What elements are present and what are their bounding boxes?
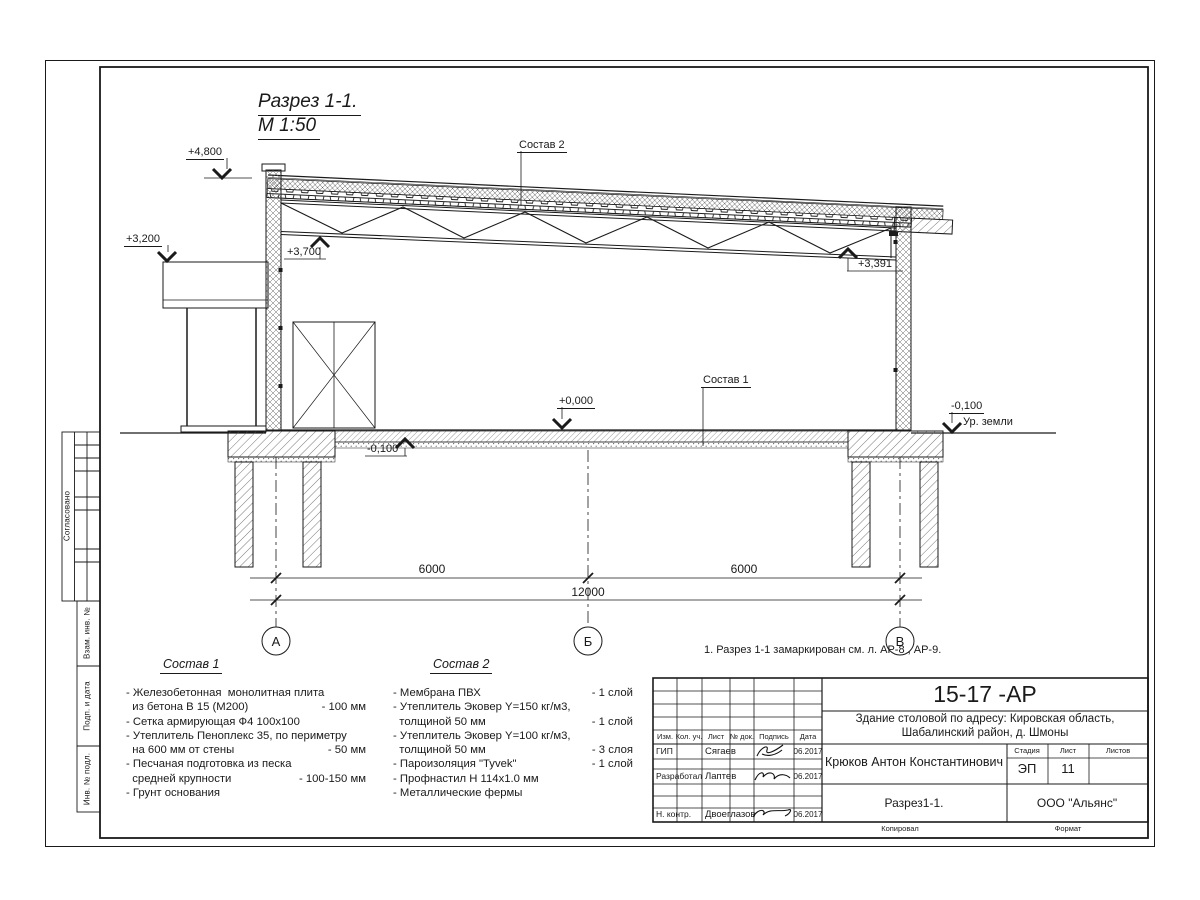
frame-label-podp-data: Подп. и дата	[84, 681, 93, 731]
sostav1-list: - Железобетонная монолитная плита из бет…	[126, 686, 366, 800]
entrance-canopy	[163, 262, 268, 432]
sostav1-callout: Состав 1	[701, 374, 751, 388]
sheet-number: 11	[1061, 762, 1075, 776]
col-header-kol: Кол. уч.	[676, 733, 703, 741]
dimension-lines	[250, 450, 922, 627]
elevation-mark-3391: +3,391	[858, 258, 892, 270]
door-leaf	[293, 322, 375, 428]
right-wall	[896, 207, 911, 430]
format-label: Формат	[1055, 825, 1082, 833]
ground-level-label: Ур. земли	[963, 416, 1013, 428]
elevation-mark-0000: +0,000	[557, 395, 595, 409]
sostav2-callout: Состав 2	[517, 139, 567, 153]
frame-label-vzam-inv: Взам. инв. №	[84, 607, 93, 659]
elevation-mark-m100-right: -0,100	[949, 400, 984, 414]
list-item: - Утеплитель Пеноплекс 35, по периметру	[126, 729, 366, 743]
doc-number: 15-17 -АР	[933, 682, 1037, 707]
elevation-mark-4800: +4,800	[186, 146, 224, 160]
signature-razrabotal	[755, 773, 790, 780]
foundation-pier	[920, 462, 938, 567]
frame-label-soglasovano: Согласовано	[64, 491, 73, 541]
foundation-pier	[852, 462, 870, 567]
list-item: толщиной 50 мм- 1 слой	[393, 715, 633, 729]
foundation-pier	[303, 462, 321, 567]
sheets-label: Листов	[1106, 747, 1130, 755]
signature-gip	[757, 745, 783, 756]
signature-nkontr	[753, 810, 791, 817]
sheet-label: Лист	[1060, 747, 1076, 755]
frame-left-column	[62, 432, 100, 812]
foundation-pier	[235, 462, 253, 567]
role-razrabotal: Разработал	[656, 772, 702, 781]
drawing-title-line1: Разрез 1-1.	[258, 92, 361, 116]
grade-beam-right	[848, 431, 943, 457]
list-item: средней крупности- 100-150 мм	[126, 772, 366, 786]
list-item: из бетона В 15 (М200)- 100 мм	[126, 700, 366, 714]
date-nkontr: 06.2017	[794, 811, 823, 820]
col-header-doc: № док.	[730, 733, 754, 741]
drawing-sheet: Разрез 1-1. М 1:50 +4,800 +3,200 +3,700 …	[0, 0, 1200, 900]
list-item: - Железобетонная монолитная плита	[126, 686, 366, 700]
name-razrabotal: Лаптев	[705, 772, 736, 782]
sostav1-heading: Состав 1	[160, 658, 222, 674]
company-name: ООО "Альянс"	[1037, 797, 1117, 810]
elevation-mark-m100-left: -0,100	[367, 443, 398, 455]
dim-12000: 12000	[571, 586, 604, 599]
sostav2-list: - Мембрана ПВХ- 1 слой - Утеплитель Эков…	[393, 686, 633, 800]
list-item: на 600 мм от стены- 50 мм	[126, 743, 366, 757]
col-header-sign: Подпись	[759, 733, 789, 741]
list-item: - Утеплитель Эковер Y=150 кг/м3,	[393, 700, 633, 714]
list-item: - Песчаная подготовка из песка	[126, 757, 366, 771]
role-nkontr: Н. контр.	[656, 810, 691, 819]
dim-6000-left: 6000	[419, 563, 446, 576]
copied-label: Копировал	[881, 825, 919, 833]
axis-bubble-a: А	[272, 635, 281, 649]
elevation-mark-3200: +3,200	[124, 233, 162, 247]
list-item: - Мембрана ПВХ- 1 слой	[393, 686, 633, 700]
list-item: - Металлические фермы	[393, 786, 633, 800]
drawing-title-scale: М 1:50	[258, 116, 320, 140]
col-header-date: Дата	[800, 733, 817, 741]
list-item: толщиной 50 мм- 3 слоя	[393, 743, 633, 757]
list-item: - Утеплитель Эковер Y=100 кг/м3,	[393, 729, 633, 743]
date-razrabotal: 06.2017	[794, 773, 823, 782]
col-header-izm: Изм.	[657, 733, 673, 741]
list-item: - Грунт основания	[126, 786, 366, 800]
date-gip: 06.2017	[794, 748, 823, 757]
role-gip: ГИП	[656, 747, 673, 756]
name-gip: Сягаев	[705, 747, 736, 757]
list-item: - Пароизоляция "Tyvek"- 1 слой	[393, 757, 633, 771]
drawing-note: 1. Разрез 1-1 замаркирован см. л. АР-8 ,…	[704, 644, 941, 656]
name-nkontr: Двоеглазов	[705, 810, 756, 820]
frame-label-inv-podl: Инв. № подл.	[84, 753, 93, 805]
axis-bubble-b: Б	[584, 635, 593, 649]
list-item: - Профнастил Н 114х1.0 мм	[393, 772, 633, 786]
grade-beam-left	[228, 431, 335, 457]
dim-6000-right: 6000	[731, 563, 758, 576]
signatures	[753, 745, 791, 817]
elevation-mark-3700: +3,700	[287, 246, 321, 258]
project-name-line2: Шабалинский район, д. Шмоны	[902, 727, 1069, 740]
project-name-line1: Здание столовой по адресу: Кировская обл…	[856, 713, 1115, 726]
author-name: Крюков Антон Константинович	[825, 756, 1003, 770]
foundations	[228, 431, 943, 567]
stage-value: ЭП	[1018, 762, 1037, 776]
drawing-name: Разрез1-1.	[885, 797, 944, 810]
col-header-list: Лист	[708, 733, 724, 741]
sostav2-heading: Состав 2	[430, 658, 492, 674]
stage-label: Стадия	[1014, 747, 1040, 755]
list-item: - Сетка армирующая Ф4 100х100	[126, 715, 366, 729]
left-wall	[266, 170, 281, 430]
